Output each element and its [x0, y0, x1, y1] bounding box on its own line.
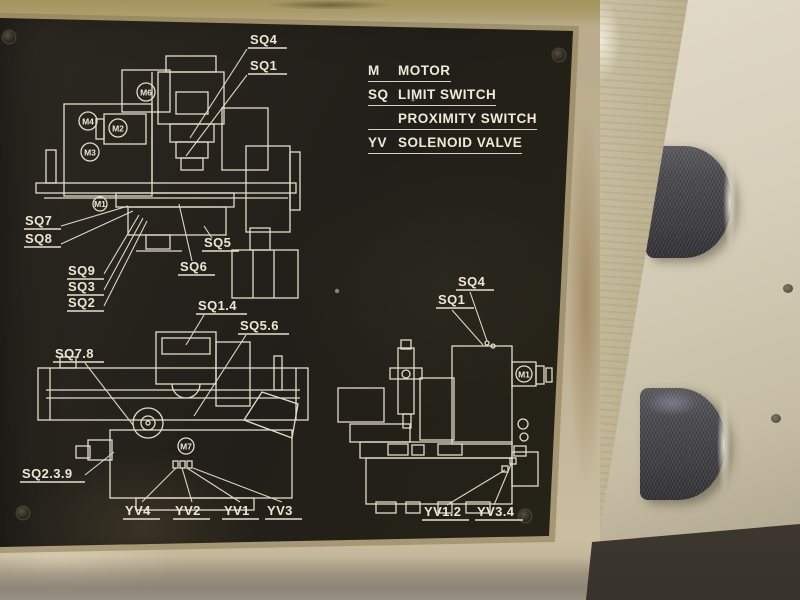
grinder-front-labels: SQ4 SQ1 YV1.2 YV3.4: [422, 274, 523, 520]
label-yv3: YV3: [267, 503, 293, 518]
label-yv1: YV1: [224, 503, 250, 518]
label-sq1: SQ1: [250, 58, 277, 73]
wall-screw-dot: [783, 284, 793, 293]
label-yv3-4: YV3.4: [477, 504, 515, 519]
line-art: M6 M4 M2 M3 M1 SQ4 SQ1: [0, 0, 600, 560]
motor-badge-m2: M2: [109, 119, 127, 137]
svg-text:M3: M3: [84, 148, 96, 158]
label-sq1-4: SQ1.4: [198, 298, 237, 313]
mill-front-diagram: M6 M4 M2 M3 M1: [36, 56, 300, 298]
grinder-front-diagram: M1: [338, 340, 552, 513]
label-sq9: SQ9: [68, 263, 95, 278]
svg-text:M6: M6: [140, 88, 152, 98]
svg-text:M2: M2: [112, 124, 124, 134]
label-sq5: SQ5: [204, 235, 231, 250]
machine-panel-photo: MMOTOR SQLIMIT SWITCH PROXIMITY SWITCH Y…: [0, 0, 800, 600]
dust-speck: [412, 99, 415, 102]
label-sq4: SQ4: [250, 32, 278, 47]
motor-badge-m3: M3: [81, 143, 99, 161]
svg-text:M4: M4: [82, 117, 94, 127]
motor-badge-m7: M7: [178, 438, 194, 454]
grinder-side-labels: SQ1.4 SQ5.6 SQ7.8 SQ2.3.9 YV4 YV2 YV1: [20, 298, 302, 519]
label-sq5-6: SQ5.6: [240, 318, 279, 333]
label-yv4: YV4: [125, 503, 151, 518]
svg-text:M7: M7: [180, 442, 192, 452]
dust-speck: [335, 289, 339, 293]
label-sq7: SQ7: [25, 213, 52, 228]
motor-badge-m1-front: M1: [516, 366, 532, 382]
label-sq2: SQ2: [68, 295, 95, 310]
label-sq2-3-9: SQ2.3.9: [22, 466, 73, 481]
label-sq4-front: SQ4: [458, 274, 486, 289]
label-sq3: SQ3: [68, 279, 95, 294]
label-sq7-8: SQ7.8: [55, 346, 94, 361]
motor-badge-m1: M1: [93, 197, 107, 211]
label-yv1-2: YV1.2: [424, 504, 461, 519]
wall-screw-dot: [771, 414, 781, 423]
motor-badge-m4: M4: [79, 112, 97, 130]
label-sq1-front: SQ1: [438, 292, 465, 307]
svg-text:M1: M1: [518, 370, 530, 380]
label-sq8: SQ8: [25, 231, 52, 246]
svg-text:M1: M1: [94, 199, 106, 209]
label-sq6: SQ6: [180, 259, 207, 274]
label-yv2: YV2: [175, 503, 201, 518]
